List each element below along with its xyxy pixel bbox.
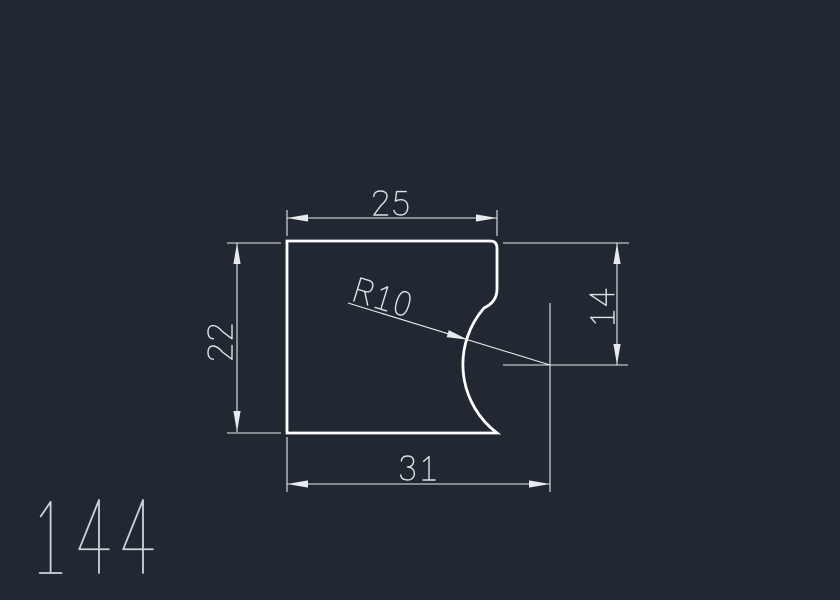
cad-canvas: 25 22 14 <box>0 0 840 600</box>
viewport-background <box>0 0 840 600</box>
cad-viewport: 25 22 14 <box>0 0 840 600</box>
